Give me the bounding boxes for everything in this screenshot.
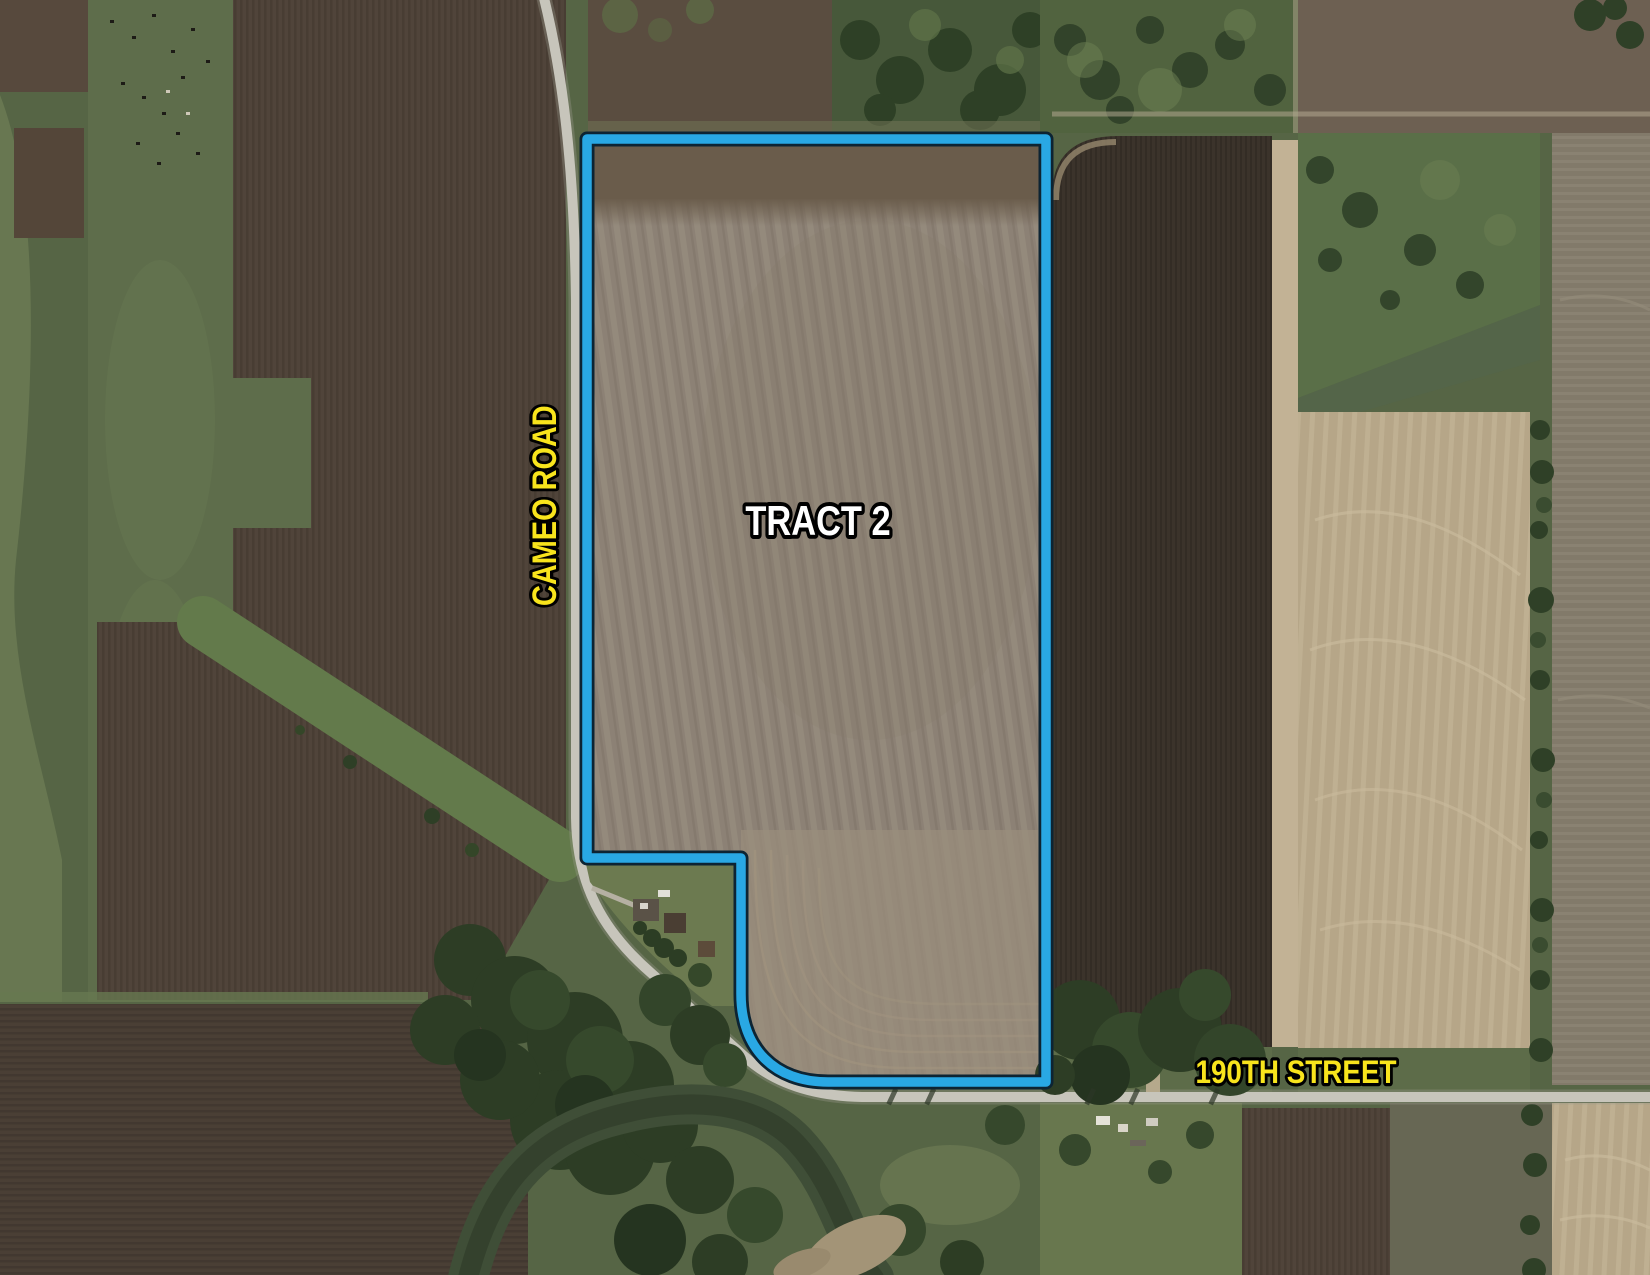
cameo-road-label: CAMEO ROAD <box>525 405 564 606</box>
map-canvas: CAMEO ROAD 190TH STREET TRACT 2 <box>0 0 1650 1275</box>
top-band <box>588 0 1052 133</box>
right-fields <box>1040 0 1650 1092</box>
tract-label: TRACT 2 <box>745 498 890 545</box>
190th-street-label: 190TH STREET <box>1195 1055 1396 1090</box>
aerial-property-map: CAMEO ROAD 190TH STREET TRACT 2 <box>0 0 1650 1275</box>
barn <box>664 913 686 933</box>
house <box>633 899 659 921</box>
vehicle <box>658 890 670 897</box>
shed <box>698 941 715 957</box>
